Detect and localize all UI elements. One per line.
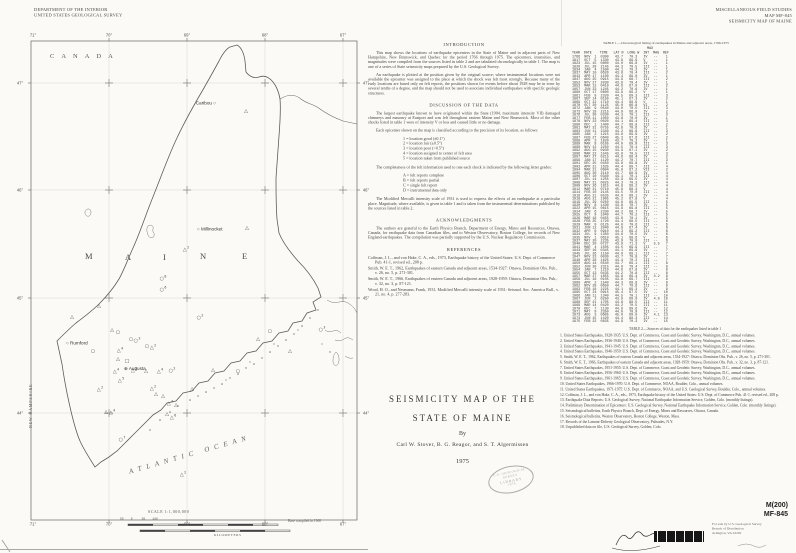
atlantic-ocean-label: ATLANTIC OCEAN xyxy=(128,433,252,476)
epicenter-symbol: ○3 xyxy=(319,326,326,333)
scale-text: SCALE 1:1,000,000 xyxy=(148,509,189,514)
epicenter-count-label: 2 xyxy=(154,343,156,347)
byline: By xyxy=(360,431,565,437)
table1-header-line2: YEAR DATE TIME LAT N LONG W INT MAG REF xyxy=(572,51,760,54)
epicenter-symbol: ○ xyxy=(268,329,272,334)
epicenter-symbol: △6 xyxy=(170,414,176,421)
graticule-label: 71° xyxy=(30,33,36,38)
source-entry: 7. United States Earthquakes, 1951-1955:… xyxy=(560,366,790,370)
references-list: Coffman, J. L., and von Hake, C. A., eds… xyxy=(368,255,560,296)
sheet-code-mf: MF-845 xyxy=(716,510,788,519)
epicenter-symbol: △4 xyxy=(109,409,115,416)
epicenter-symbol: △ xyxy=(97,304,101,309)
epicenter-count-label: 2 xyxy=(154,384,156,388)
epicenter-count-label: 2 xyxy=(101,385,103,389)
town-marker: Caribou ○ xyxy=(196,101,216,106)
maine-state-label-letter: A xyxy=(125,252,131,262)
reference-citation: Smith, W. E. T., 1962, Earthquakes of ea… xyxy=(368,266,560,275)
publication-year: 1975 xyxy=(360,458,565,465)
epicenter-symbol: ○ xyxy=(236,369,240,374)
epicenter-symbol: △4 xyxy=(113,368,119,375)
epicenter-symbol: △4 xyxy=(157,368,163,375)
felt-report-grade-list: A = felt reports completeB = felt report… xyxy=(403,173,560,193)
source-entry: 12. Coffman, J. L., and von Hake, C. A.,… xyxy=(560,393,790,397)
source-entry: 2. United States Earthquakes, 1936-1940:… xyxy=(560,339,790,343)
sheet-codes: M(200) MF-845 xyxy=(716,501,788,519)
source-entry: 11. United States Earthquakes, 1971-1975… xyxy=(560,387,790,391)
scan-crease xyxy=(561,0,562,46)
epicenter-symbol: △ xyxy=(256,337,260,342)
graticule-label: 70° xyxy=(106,522,112,527)
reference-citation: Wood, H. O., and Neumann, Frank, 1931, M… xyxy=(368,287,560,296)
graticule-label: 67° xyxy=(340,522,346,527)
graticule-label: 70° xyxy=(106,33,112,38)
table1: TABLE 1.—Chronological listing of earthq… xyxy=(572,41,760,323)
table2-entries: 1. United States Earthquakes, 1928-1935:… xyxy=(560,334,790,430)
epicenter-count-label: 2 xyxy=(187,245,189,249)
graticule-label: 44° xyxy=(17,411,23,416)
epicenter-count-label: 6 xyxy=(164,285,166,289)
epicenter-symbol: ○ xyxy=(91,349,95,354)
table1-header-line1: MAX xyxy=(572,47,760,50)
epicenter-symbol: △ xyxy=(288,349,292,354)
scale-units-label: KILOMETERS xyxy=(214,533,241,537)
epicenter-symbol: ○ xyxy=(116,330,120,335)
epicenter-symbol: △ xyxy=(174,403,178,408)
epicenter-symbol: △ xyxy=(110,328,114,333)
graticule-label: 45° xyxy=(17,296,23,301)
list-item: D = instrumental data only xyxy=(403,188,560,193)
source-entry: 16. Seismological bulletins, Weston Obse… xyxy=(560,414,790,418)
epicenter-symbol: △4 xyxy=(117,347,123,354)
discussion-paragraph-4: The Modified Mercalli intensity scale of… xyxy=(368,197,560,211)
discussion-paragraph-2: Each epicenter shown on the map is class… xyxy=(368,128,560,133)
source-entry: 4. United States Earthquakes, 1946-1950:… xyxy=(560,350,790,354)
source-entry: 8. United States Earthquakes, 1956-1960:… xyxy=(560,371,790,375)
list-item: 5 = location taken from published source xyxy=(403,156,560,161)
source-entry: 17. Records of the Lamont-Doherty Geolog… xyxy=(560,420,790,424)
maine-state-label-letter: I xyxy=(163,252,166,262)
reference-citation: Smith, W. E. T., 1966, Earthquakes of ea… xyxy=(368,277,560,286)
discussion-heading: DISCUSSION OF THE DATA xyxy=(368,102,560,107)
epicenter-symbol: △ xyxy=(244,109,248,114)
registration-stamp xyxy=(654,531,704,542)
maine-state-label-letter: E xyxy=(242,251,247,261)
map-title-line1: SEISMICITY MAP OF THE xyxy=(360,394,565,404)
epicenter-count-label: 4 xyxy=(161,367,163,371)
town-marker: ○ Rumford xyxy=(66,341,88,346)
epicenter-symbol: ○6 xyxy=(160,286,167,293)
epicenter-count-label: 3 xyxy=(138,336,140,340)
table2-title: TABLE 2.—Sources of data for the earthqu… xyxy=(560,327,790,331)
introduction-paragraph-2: An earthquake is plotted at the position… xyxy=(368,72,560,95)
epicenter-count-label: 2 xyxy=(173,366,175,370)
base-credit-note: Base compiled in 1968 xyxy=(288,519,321,523)
maine-state-label-letter: N xyxy=(200,251,206,261)
source-entry: 10. United States Earthquakes, 1966-1970… xyxy=(560,382,790,386)
source-entry: 13. Earthquake Data Reports: U.S. Geolog… xyxy=(560,398,790,402)
maine-state-label-letter: M xyxy=(85,251,93,261)
epicenter-symbol: △2 xyxy=(183,246,189,253)
scan-bottom-edge xyxy=(0,549,368,550)
table1-rows: 1766 NOV 1 0300 43.7 70.3 IV -- 11817 OC… xyxy=(572,56,760,324)
epicenter-count-label: 5 xyxy=(122,376,124,380)
epicenter-count-label: 2 xyxy=(184,470,186,474)
title-block: SEISMICITY MAP OF THE STATE OF MAINE By … xyxy=(360,394,565,465)
authors: Carl W. Stover, B. G. Reagor, and S. T. … xyxy=(360,442,565,448)
table-row: 1975 FEB 22 0835 44.9 70.3 IV -- 15 xyxy=(572,320,760,323)
discussion-paragraph-1: The largest earthquake known to have ori… xyxy=(368,111,560,125)
graticule-label: 69° xyxy=(184,522,190,527)
location-quality-list: 1 = location good (±0.1°)2 = location fa… xyxy=(403,136,560,161)
map-title-line2: STATE OF MAINE xyxy=(360,413,565,423)
source-entry: 1. United States Earthquakes, 1928-1935:… xyxy=(560,334,790,338)
epicenter-symbol: △5 xyxy=(118,377,124,384)
epicenter-symbol: △ xyxy=(161,394,165,399)
scale-tick-labels: 50 0 50 100 xyxy=(120,517,158,521)
epicenter-count-label: 2 xyxy=(201,313,203,317)
epicenter-symbol: ○7 xyxy=(119,436,126,443)
epicenter-symbol: ○2 xyxy=(197,314,204,321)
town-marker: ⊕ Augusta xyxy=(124,366,146,372)
source-entry: 6. Smith, W. E. T., 1966, Earthquakes of… xyxy=(560,360,790,364)
graticule-label: 47° xyxy=(17,81,23,86)
epicenter-count-label: 4 xyxy=(171,399,173,403)
canada-label: CANADA xyxy=(50,53,120,60)
source-entry: 5. Smith, W. E. T., 1962, Earthquakes of… xyxy=(560,355,790,359)
epicenter-symbol: △4 xyxy=(167,400,173,407)
epicenter-symbol: △ xyxy=(154,392,158,397)
graticule-label: 46° xyxy=(17,188,23,193)
acknowledgments-heading: ACKNOWLEDGMENTS xyxy=(368,217,560,222)
new-hampshire-label: NEW HAMPSHIRE xyxy=(29,384,33,428)
graticule-label: 68° xyxy=(262,33,268,38)
epicenter-symbol: △2 xyxy=(150,385,156,392)
epicenter-symbol: ○8 xyxy=(160,275,167,282)
reference-citation: Coffman, J. L., and von Hake, C. A., eds… xyxy=(368,255,560,264)
graticule-label: 68° xyxy=(262,522,268,527)
introduction-heading: INTRODUCTION xyxy=(368,42,560,47)
epicenter-symbol: △ xyxy=(211,368,215,373)
epicenter-symbol: △ xyxy=(104,410,108,415)
epicenter-count-label: 7 xyxy=(123,435,125,439)
table1-title: TABLE 1.—Chronological listing of earthq… xyxy=(572,41,760,45)
epicenter-symbol: △2 xyxy=(180,471,186,478)
epicenter-symbol: △ xyxy=(190,387,194,392)
text-column: INTRODUCTION This map shows the location… xyxy=(368,42,560,298)
town-marker: ○ Millinocket xyxy=(197,227,223,232)
discussion-paragraph-3: The completeness of the felt information… xyxy=(368,165,560,170)
epicenter-symbol: □ xyxy=(125,359,130,364)
epicenter-symbol: △2 xyxy=(97,386,103,393)
source-entry: 9. United States Earthquakes, 1961-1965:… xyxy=(560,377,790,381)
epicenter-symbol: △ xyxy=(245,226,249,231)
acknowledgments-paragraph: The authors are grateful to the Earth Ph… xyxy=(368,226,560,240)
graticule-label: 71° xyxy=(30,522,36,527)
source-entry: 18. Unpublished data on file, U.S. Geolo… xyxy=(560,425,790,429)
epicenter-symbol: △ xyxy=(70,315,74,320)
epicenter-symbol: △2 xyxy=(150,344,156,351)
epicenter-symbol: ○ xyxy=(145,344,149,349)
source-entry: 3. United States Earthquakes, 1941-1945:… xyxy=(560,344,790,348)
source-entry: 14. Preliminary Determination of Epicent… xyxy=(560,404,790,408)
source-entry: 15. Seismological bulletins, Earth Physi… xyxy=(560,409,790,413)
introduction-paragraph-1: This map shows the locations of earthqua… xyxy=(368,51,560,69)
epicenter-symbol: ○3 xyxy=(134,337,141,344)
table2: TABLE 2.—Sources of data for the earthqu… xyxy=(560,327,790,431)
sheet-code-m200: M(200) xyxy=(716,501,788,510)
epicenter-symbol: △ xyxy=(116,357,120,362)
map-sheet: DEPARTMENT OF THE INTERIOR UNITED STATES… xyxy=(0,0,796,553)
references-heading: REFERENCES xyxy=(368,247,560,252)
epicenter-count-label: 3 xyxy=(323,325,325,329)
epicenter-count-label: 4 xyxy=(121,346,123,350)
epicenter-symbol: ○ xyxy=(129,337,133,342)
graticule-label: 69° xyxy=(184,33,190,38)
epicenter-count-label: 4 xyxy=(117,367,119,371)
epicenter-count-label: 4 xyxy=(113,408,115,412)
epicenter-symbol: △ xyxy=(165,412,169,417)
distribution-note-line: Arlington, VA 22202 xyxy=(712,531,792,535)
epicenter-symbol: ○2 xyxy=(169,367,176,374)
distribution-note: For sale by U.S. Geological SurveyBranch… xyxy=(712,522,792,535)
epicenter-count-label: 8 xyxy=(164,274,166,278)
graticule-label: 67° xyxy=(340,33,346,38)
epicenter-count-label: 6 xyxy=(174,413,176,417)
